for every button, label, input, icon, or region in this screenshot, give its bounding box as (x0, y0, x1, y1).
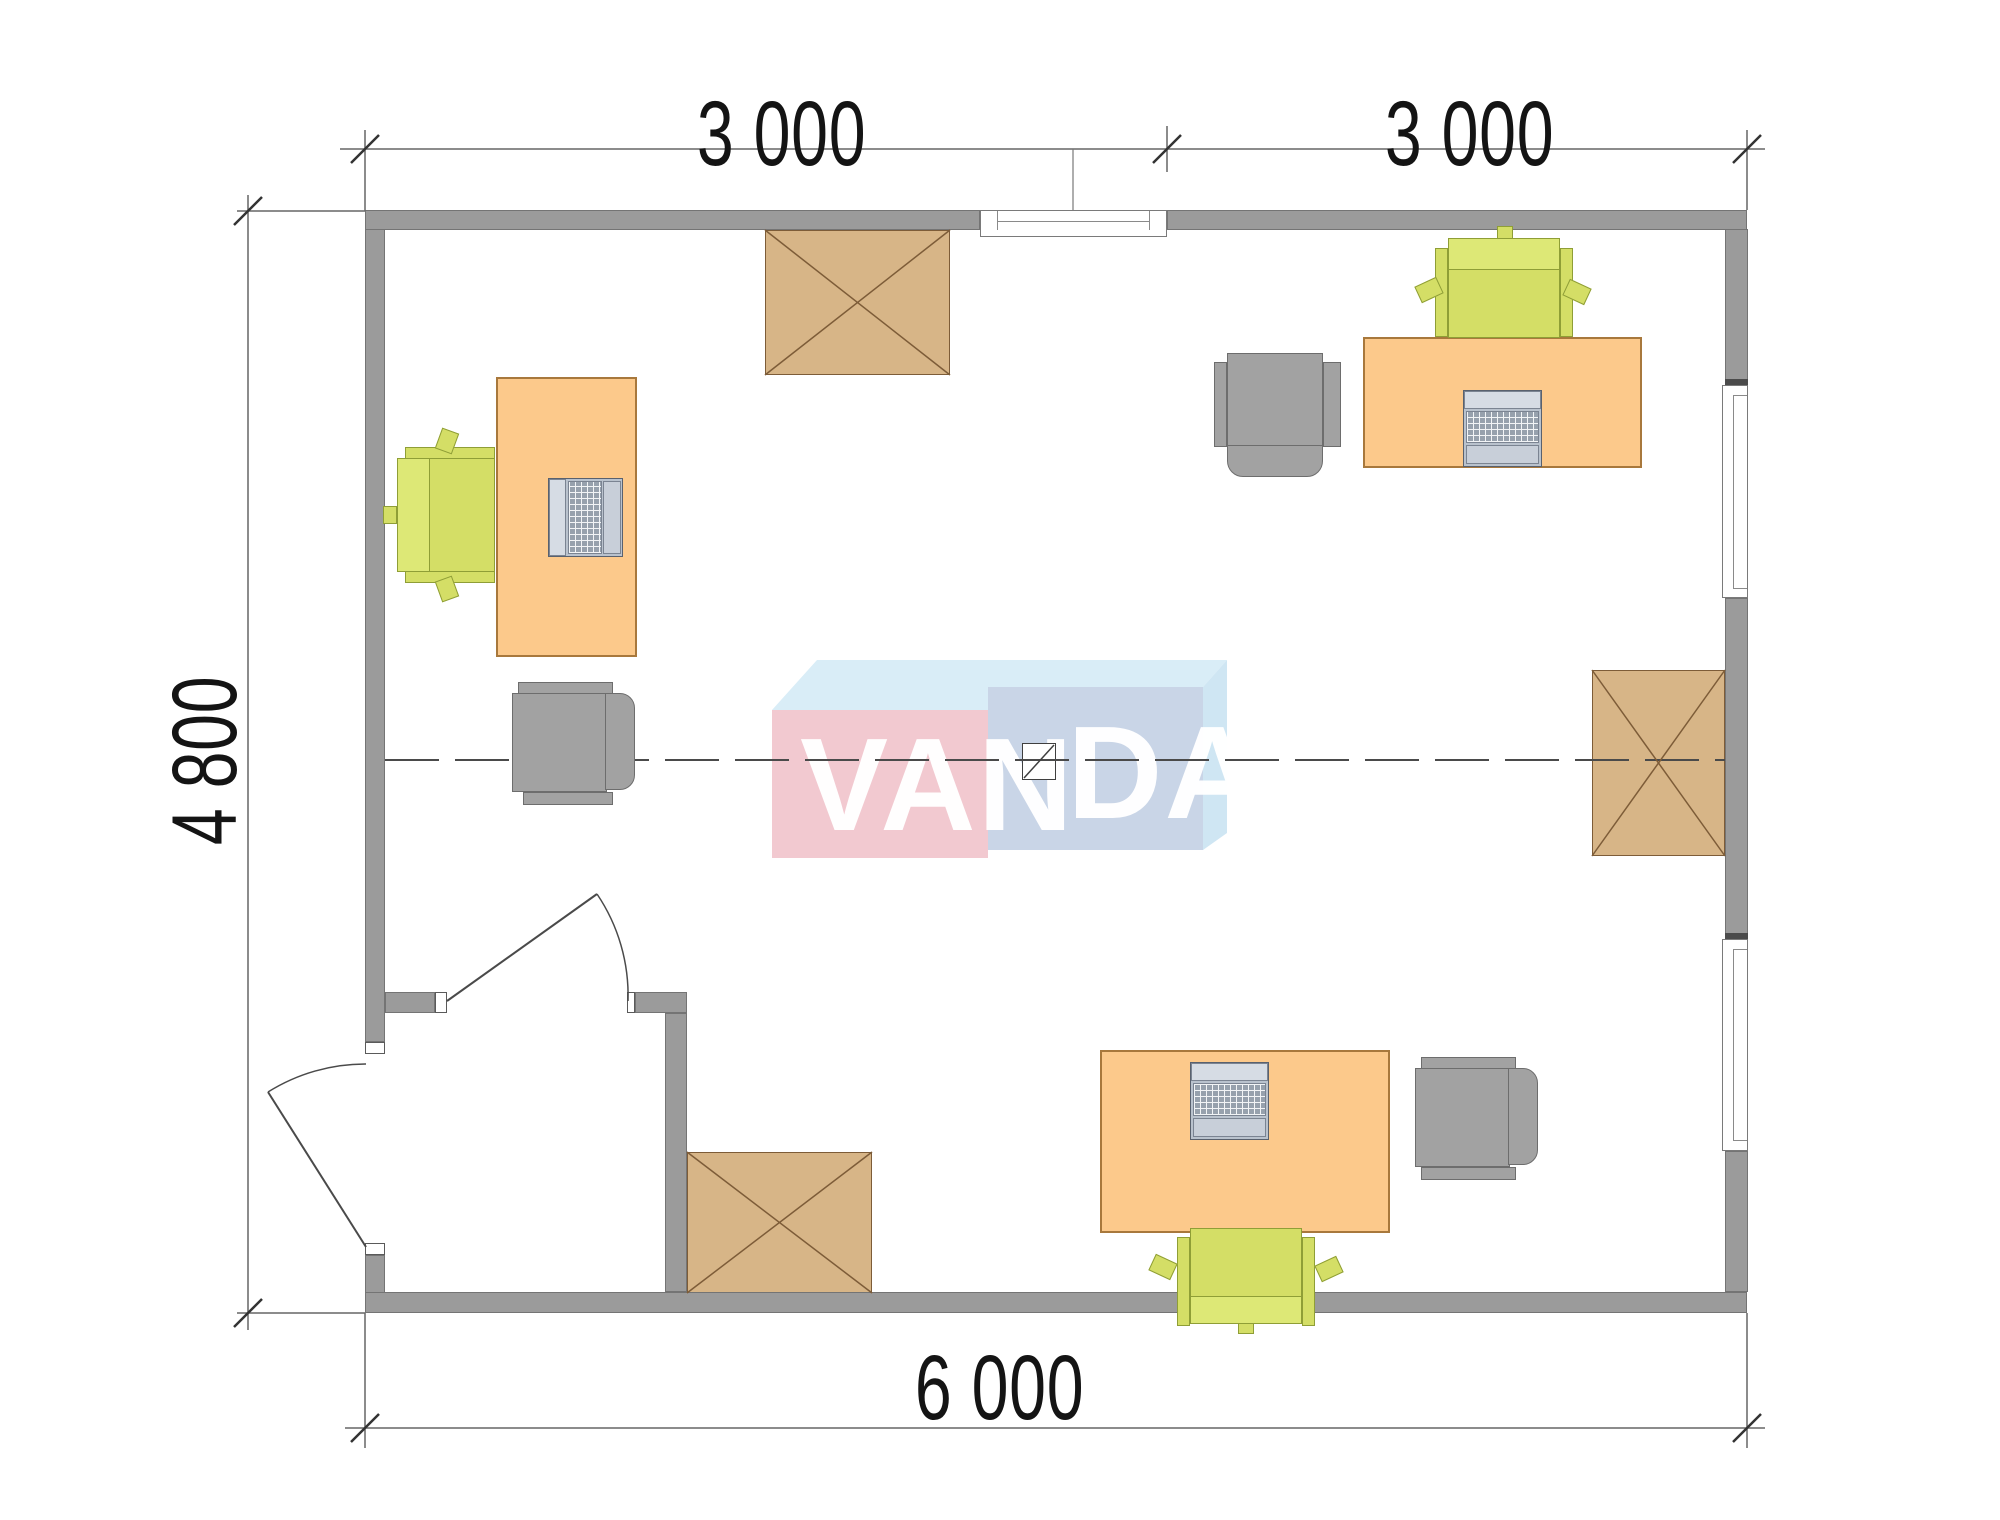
door-entry-leaf (268, 1092, 366, 1247)
door-inner-swing-arc (597, 894, 628, 1001)
dim-label-top-left-text: 3 000 (697, 88, 866, 180)
dim-label-top-left: 3 000 (632, 96, 932, 172)
dim-label-left: 4 800 (167, 610, 243, 910)
plan-linework (0, 0, 2000, 1520)
dim-label-bottom-text: 6 000 (915, 1342, 1084, 1434)
dim-label-left-text: 4 800 (159, 675, 251, 844)
door-entry-swing-arc (268, 1064, 366, 1092)
dim-label-top-right-text: 3 000 (1385, 88, 1554, 180)
door-inner-leaf (447, 894, 597, 1001)
dim-label-bottom: 6 000 (850, 1350, 1150, 1426)
axis-square-diagonal (1024, 745, 1054, 778)
dim-label-top-right: 3 000 (1320, 96, 1620, 172)
floor-plan-canvas: VAN DA (0, 0, 2000, 1520)
